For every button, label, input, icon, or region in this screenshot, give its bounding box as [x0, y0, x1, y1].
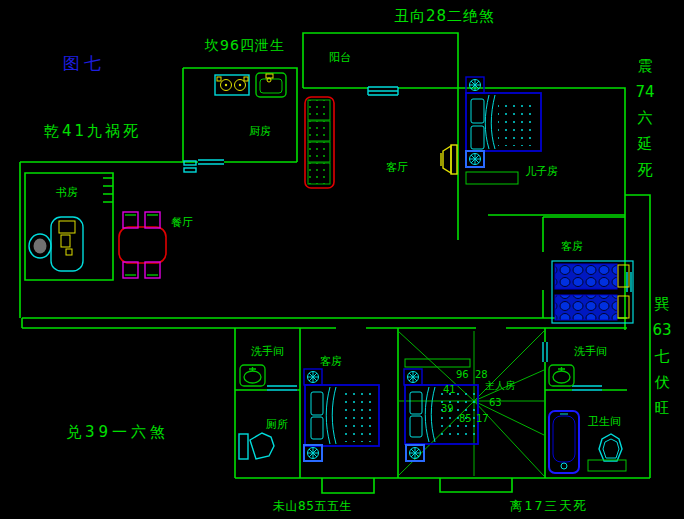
guest-south-nightstand-bottom — [304, 445, 322, 461]
compass-number-w-lower: 39 — [441, 403, 454, 414]
label-room-washroom-left: 洗手间 — [251, 346, 284, 358]
annotation-qian-northwest: 乾41九祸死 — [44, 123, 141, 140]
cad-floorplan-canvas: 丑向28二绝煞 图七 坎96四泄生 乾41九祸死 震 74 六 延 死 巽 63… — [0, 0, 684, 519]
label-room-son: 儿子房 — [525, 166, 558, 178]
annotation-wei-south-left: 未山85五五生 — [273, 500, 352, 513]
toilet-right — [588, 434, 626, 471]
label-room-living: 客厅 — [386, 162, 408, 174]
label-room-guest-south: 客房 — [320, 356, 342, 368]
figure-number-label: 图七 — [63, 54, 105, 73]
annotation-li-south-right: 离17三天死 — [510, 499, 588, 513]
compass-number-s: 17 — [476, 413, 489, 424]
toilet-left — [239, 433, 274, 459]
compass-number-e: 63 — [489, 397, 502, 408]
son-nightstand-bottom — [466, 151, 484, 167]
shelf-master-room — [405, 359, 470, 367]
washbasin-right — [549, 365, 574, 386]
study-desk — [51, 217, 83, 271]
son-nightstand-top — [466, 77, 484, 93]
tv-set — [441, 145, 457, 174]
son-bed — [466, 93, 541, 151]
annotation-zhen-east: 震 74 六 延 死 — [634, 53, 656, 183]
master-nightstand-top — [404, 369, 422, 385]
guest-south-nightstand-top — [304, 369, 322, 385]
compass-number-w-upper: 41 — [443, 384, 456, 395]
floorplan-drawing — [0, 0, 684, 519]
guest-east-beds — [552, 261, 633, 323]
label-room-balcony: 阳台 — [329, 52, 351, 64]
compass-number-sw: 85 — [459, 413, 472, 424]
label-room-master: 主人房 — [485, 380, 515, 391]
dining-table — [119, 227, 166, 263]
compass-number-n: 28 — [475, 369, 488, 380]
guest-south-bed — [305, 385, 379, 446]
sofa — [305, 97, 334, 188]
annotation-xun-southeast: 巽 63 七 伏 旺 — [651, 291, 673, 421]
study-chair — [29, 234, 51, 258]
annotation-top-direction: 丑向28二绝煞 — [394, 8, 495, 25]
label-room-washroom-right: 洗手间 — [574, 346, 607, 358]
label-room-study: 书房 — [56, 187, 78, 199]
annotation-dui-west: 兑39一六煞 — [66, 424, 169, 441]
dining-chairs — [123, 212, 160, 278]
label-room-guest-east: 客房 — [561, 241, 583, 253]
label-room-toilet: 厕所 — [266, 419, 288, 431]
shelf-son-room — [466, 172, 518, 184]
kitchen-sink — [256, 73, 286, 97]
kitchen-stove — [215, 75, 249, 95]
label-room-dining: 餐厅 — [171, 217, 193, 229]
label-room-kitchen: 厨房 — [249, 126, 271, 138]
washbasin-left — [240, 365, 265, 386]
bathtub — [549, 411, 579, 473]
label-room-bathroom: 卫生间 — [588, 416, 621, 428]
annotation-kan-north: 坎96四泄生 — [205, 38, 285, 53]
compass-number-nw: 96 — [456, 369, 469, 380]
